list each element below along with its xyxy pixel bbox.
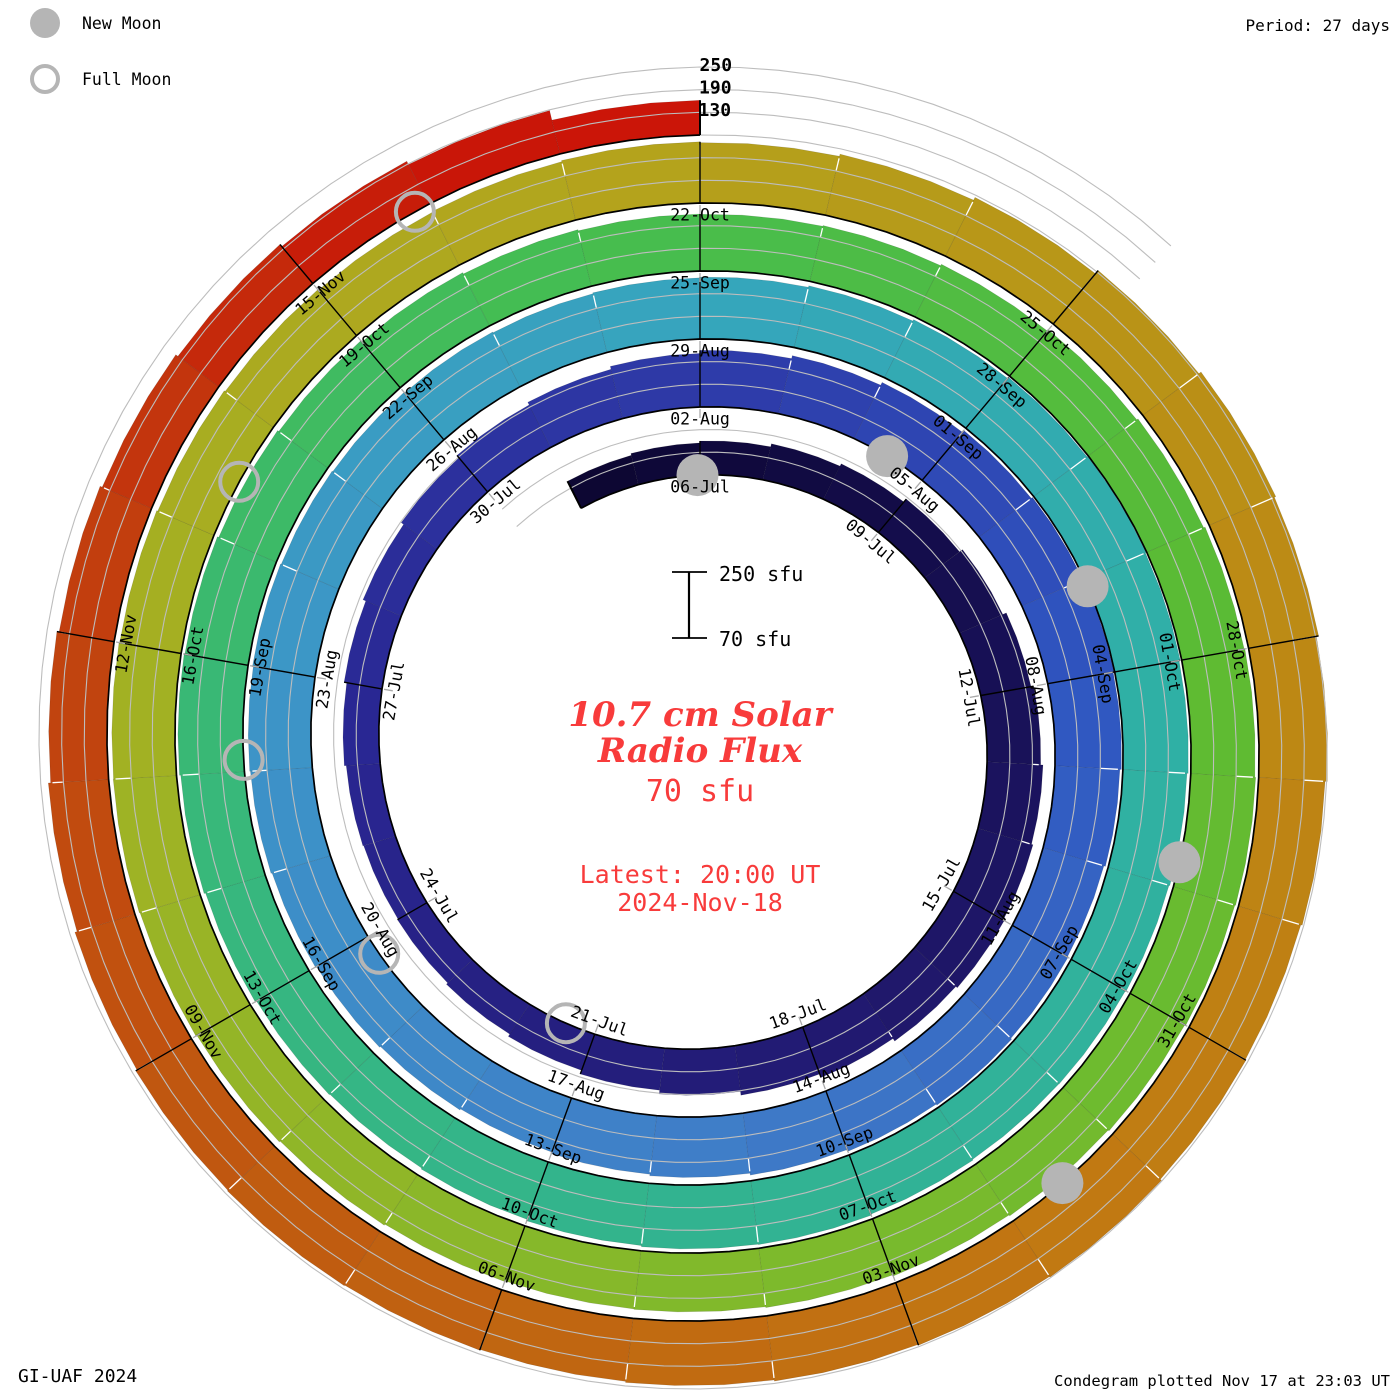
chart-title-line2: Radio Flux	[568, 733, 831, 769]
current-flux-value: 70 sfu	[646, 774, 754, 809]
date-label: 29-Aug	[670, 342, 730, 361]
new-moon-marker	[1041, 1162, 1083, 1204]
latest-line1: Latest: 20:00 UT	[580, 861, 821, 889]
new-moon-marker	[1159, 841, 1201, 883]
scale-bottom-label: 70 sfu	[719, 627, 791, 651]
full-moon-label: Full Moon	[82, 70, 171, 89]
flux-bar	[650, 1113, 750, 1177]
date-label: 22-Oct	[670, 206, 730, 225]
date-label: 06-Jul	[670, 478, 730, 497]
flux-bar	[1249, 636, 1328, 781]
new-moon-marker	[1067, 565, 1109, 607]
scale-bar	[672, 572, 707, 638]
credit-left: GI-UAF 2024	[18, 1366, 137, 1387]
day-tick	[116, 778, 131, 779]
flux-tick-label: 130	[699, 100, 732, 121]
day-tick	[1169, 772, 1185, 773]
condegram-page: { "legend": { "new_moon": "New Moon", "f…	[0, 0, 1400, 1400]
latest-line2: 2024-Nov-18	[580, 889, 821, 917]
new-moon-icon	[30, 8, 60, 38]
new-moon-label: New Moon	[82, 14, 161, 33]
radial-flux-labels: 130190250	[699, 55, 733, 121]
day-tick	[1237, 776, 1253, 777]
day-tick	[1101, 768, 1118, 769]
date-label: 25-Sep	[670, 274, 730, 293]
flux-bar	[250, 768, 330, 874]
credit-right: Condegram plotted Nov 17 at 23:03 UT	[1054, 1372, 1390, 1390]
flux-tick-label: 250	[700, 55, 733, 76]
flux-bar	[49, 632, 114, 783]
flux-bar	[700, 143, 840, 216]
chart-title: 10.7 cm Solar Radio Flux	[568, 697, 831, 769]
flux-bar	[634, 1248, 766, 1312]
flux-bar	[659, 1046, 740, 1096]
flux-bar	[626, 1316, 775, 1386]
legend-full-moon: Full Moon	[30, 64, 171, 94]
scale-top-label: 250 sfu	[719, 562, 803, 586]
latest-annotation: Latest: 20:00 UT 2024-Nov-18	[580, 861, 821, 917]
day-tick	[53, 782, 63, 783]
flux-bar	[343, 683, 382, 766]
flux-tick-label: 190	[699, 78, 732, 99]
legend-new-moon: New Moon	[30, 8, 161, 38]
period-label: Period: 27 days	[1246, 16, 1391, 35]
flux-bar	[641, 1181, 758, 1249]
chart-title-line1: 10.7 cm Solar	[568, 697, 831, 733]
date-label: 02-Aug	[670, 410, 730, 429]
full-moon-icon	[30, 64, 60, 94]
day-tick	[183, 774, 199, 775]
